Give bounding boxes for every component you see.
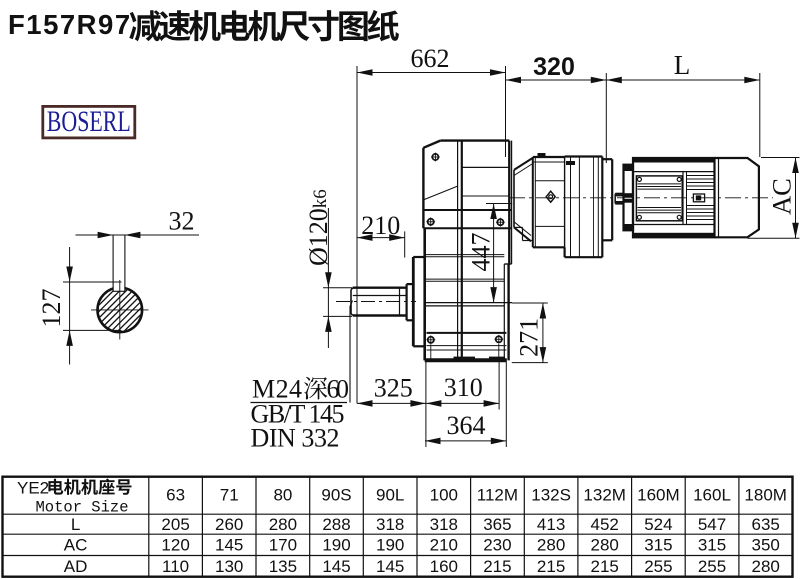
- svg-text:112M: 112M: [477, 486, 518, 505]
- svg-text:271: 271: [515, 318, 544, 357]
- svg-text:547: 547: [698, 515, 726, 534]
- svg-text:205: 205: [161, 515, 189, 534]
- svg-text:160: 160: [430, 557, 458, 576]
- svg-text:L: L: [674, 50, 691, 80]
- svg-text:132M: 132M: [583, 486, 626, 505]
- svg-text:132S: 132S: [531, 486, 571, 505]
- svg-text:145: 145: [322, 557, 350, 576]
- svg-text:145: 145: [376, 557, 404, 576]
- svg-text:215: 215: [591, 557, 619, 576]
- svg-text:190: 190: [322, 536, 350, 555]
- svg-text:662: 662: [411, 44, 450, 73]
- svg-text:160M: 160M: [637, 486, 680, 505]
- svg-text:100: 100: [430, 486, 458, 505]
- svg-text:AC: AC: [767, 178, 797, 215]
- svg-text:325: 325: [374, 374, 413, 403]
- svg-text:145: 145: [215, 536, 243, 555]
- svg-text:452: 452: [591, 515, 619, 534]
- svg-text:80: 80: [273, 486, 292, 505]
- svg-text:32: 32: [169, 207, 195, 236]
- svg-text:130: 130: [215, 557, 243, 576]
- svg-text:120: 120: [161, 536, 189, 555]
- svg-text:318: 318: [376, 515, 404, 534]
- svg-text:280: 280: [752, 557, 780, 576]
- svg-text:215: 215: [483, 557, 511, 576]
- svg-text:350: 350: [752, 536, 780, 555]
- svg-text:AD: AD: [64, 557, 88, 576]
- svg-text:F157R97: F157R97: [8, 9, 132, 40]
- svg-text:255: 255: [698, 557, 726, 576]
- svg-text:190: 190: [376, 536, 404, 555]
- svg-text:315: 315: [698, 536, 726, 555]
- svg-text:135: 135: [269, 557, 297, 576]
- svg-text:365: 365: [483, 515, 511, 534]
- svg-text:DIN 332: DIN 332: [251, 424, 340, 453]
- svg-text:215: 215: [537, 557, 565, 576]
- svg-text:447: 447: [466, 233, 495, 272]
- svg-text:635: 635: [752, 515, 780, 534]
- svg-text:63: 63: [166, 486, 185, 505]
- svg-text:210: 210: [361, 211, 400, 240]
- svg-text:310: 310: [444, 373, 483, 402]
- svg-text:364: 364: [447, 411, 486, 440]
- svg-text:YE2: YE2: [17, 478, 49, 497]
- svg-text:288: 288: [322, 515, 350, 534]
- svg-text:318: 318: [430, 515, 458, 534]
- svg-text:90L: 90L: [376, 486, 404, 505]
- svg-text:280: 280: [591, 536, 619, 555]
- svg-text:210: 210: [430, 536, 458, 555]
- svg-text:280: 280: [537, 536, 565, 555]
- svg-text:127: 127: [37, 289, 66, 328]
- svg-text:160L: 160L: [693, 486, 731, 505]
- svg-text:280: 280: [269, 515, 297, 534]
- svg-text:255: 255: [644, 557, 672, 576]
- svg-text:110: 110: [162, 557, 189, 576]
- svg-text:230: 230: [483, 536, 511, 555]
- svg-text:180M: 180M: [744, 486, 787, 505]
- svg-text:524: 524: [644, 515, 672, 534]
- svg-text:Motor Size: Motor Size: [36, 499, 129, 517]
- svg-text:170: 170: [269, 536, 297, 555]
- svg-text:BOSERL: BOSERL: [47, 105, 131, 138]
- svg-text:413: 413: [537, 515, 565, 534]
- svg-text:315: 315: [644, 536, 672, 555]
- svg-text:AC: AC: [64, 536, 88, 555]
- svg-text:90S: 90S: [321, 486, 351, 505]
- svg-text:Ø120k6: Ø120k6: [304, 189, 333, 266]
- svg-text:260: 260: [215, 515, 243, 534]
- svg-text:L: L: [71, 515, 80, 534]
- svg-text:320: 320: [533, 53, 575, 81]
- svg-text:71: 71: [220, 486, 239, 505]
